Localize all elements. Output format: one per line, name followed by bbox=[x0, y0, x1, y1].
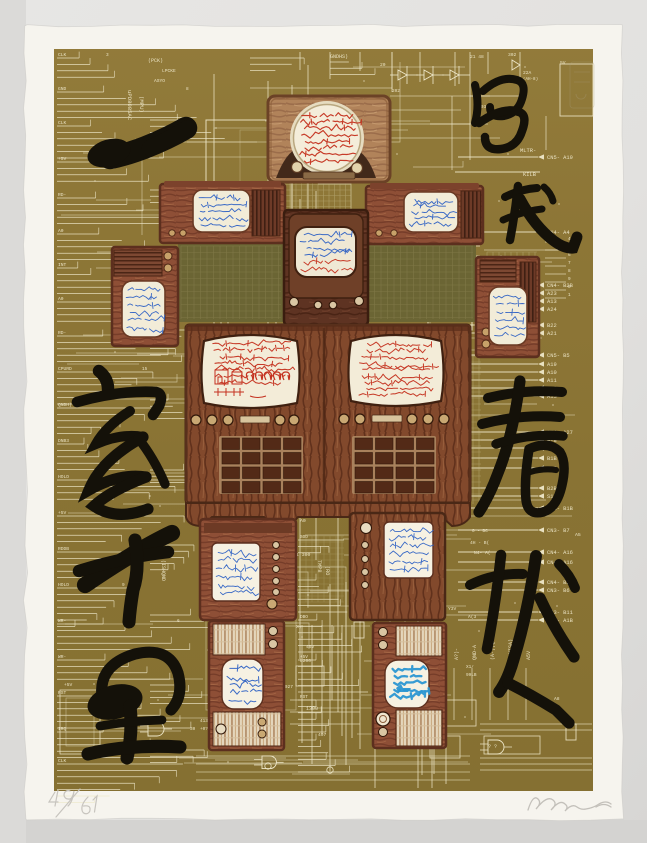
svg-text:A0: A0 bbox=[58, 296, 64, 302]
svg-text:A24: A24 bbox=[547, 307, 557, 313]
svg-text:+5V: +5V bbox=[58, 510, 67, 516]
svg-text:15: 15 bbox=[142, 367, 148, 372]
svg-text:DBO: DBO bbox=[300, 615, 308, 620]
svg-text:LPCKE: LPCKE bbox=[162, 68, 176, 74]
svg-text:A?)-: A?)- bbox=[454, 648, 460, 660]
svg-text:20: 20 bbox=[380, 62, 386, 68]
svg-text:CN5- A19: CN5- A19 bbox=[547, 155, 573, 161]
svg-text:+0?: +0? bbox=[200, 727, 208, 732]
svg-text:RDDB: RDDB bbox=[58, 546, 69, 552]
svg-text:8: 8 bbox=[186, 87, 189, 92]
svg-text:DNB3: DNB3 bbox=[58, 438, 69, 444]
svg-text:A0: A0 bbox=[300, 518, 306, 524]
svg-text:A5: A5 bbox=[575, 532, 581, 538]
svg-text:CN3- B6: CN3- B6 bbox=[547, 588, 570, 594]
svg-text:ASYO: ASYO bbox=[154, 78, 165, 84]
svg-text:0: 0 bbox=[568, 285, 571, 290]
svg-text:N4- A(: N4- A( bbox=[474, 550, 491, 556]
svg-text:QNDH): QNDH) bbox=[58, 402, 72, 408]
svg-text:KILB: KILB bbox=[523, 172, 537, 178]
svg-text:1 300: 1 300 bbox=[296, 552, 311, 558]
svg-text:A11: A11 bbox=[547, 378, 557, 384]
svg-text:INT: INT bbox=[58, 262, 67, 268]
svg-text:(RO: (RO bbox=[324, 566, 330, 575]
svg-text:CN4- A16: CN4- A16 bbox=[547, 550, 573, 556]
svg-text:? ?: ? ? bbox=[488, 744, 497, 750]
svg-text:RST: RST bbox=[300, 695, 308, 700]
svg-text:CLK: CLK bbox=[58, 120, 67, 126]
svg-text:9: 9 bbox=[122, 583, 125, 588]
svg-text:45V: 45V bbox=[306, 644, 315, 650]
svg-text:22A: 22A bbox=[523, 70, 532, 76]
svg-text:6: 6 bbox=[568, 253, 571, 258]
svg-text:MLTR-: MLTR- bbox=[520, 148, 536, 154]
svg-text:uPD8085AC: uPD8085AC bbox=[126, 90, 133, 121]
svg-text:302: 302 bbox=[508, 52, 517, 58]
svg-text:+5V: +5V bbox=[64, 682, 73, 688]
svg-text:X): X) bbox=[296, 624, 302, 630]
svg-text:WR-: WR- bbox=[58, 618, 66, 624]
svg-text:WR-: WR- bbox=[58, 654, 66, 660]
svg-text:RD-: RD- bbox=[58, 192, 66, 198]
svg-text:30: 30 bbox=[190, 727, 196, 732]
svg-text:A19: A19 bbox=[547, 362, 557, 368]
svg-text:(ISHQND: (ISHQND bbox=[160, 560, 166, 581]
svg-text:3: 3 bbox=[106, 53, 109, 58]
svg-text:A21: A21 bbox=[547, 331, 557, 337]
svg-text:Y3V: Y3V bbox=[448, 606, 457, 612]
svg-text:A10: A10 bbox=[547, 370, 557, 376]
svg-text:A5V: A5V bbox=[526, 651, 532, 660]
svg-text:CPURD: CPURD bbox=[58, 366, 72, 372]
svg-text:A23: A23 bbox=[547, 291, 557, 297]
svg-text:(PCK): (PCK) bbox=[148, 58, 163, 64]
svg-text:+5V: +5V bbox=[58, 156, 67, 162]
svg-text:A0: A0 bbox=[58, 228, 64, 234]
svg-text:A13: A13 bbox=[547, 299, 557, 305]
svg-text:CN5- B5: CN5- B5 bbox=[547, 353, 570, 359]
svg-text:B22: B22 bbox=[547, 323, 557, 329]
svg-text:9: 9 bbox=[568, 277, 571, 282]
svg-text:21 48: 21 48 bbox=[470, 54, 484, 60]
svg-text:5V: 5V bbox=[560, 60, 566, 66]
svg-text:RST: RST bbox=[58, 690, 67, 696]
svg-text:L200: L200 bbox=[300, 658, 311, 664]
svg-text:7: 7 bbox=[568, 261, 571, 266]
svg-text:IRQ: IRQ bbox=[58, 726, 67, 732]
svg-text:4H - B(: 4H - B( bbox=[470, 540, 489, 546]
svg-text:A(3: A(3 bbox=[468, 614, 477, 620]
svg-text:(MPU): (MPU) bbox=[138, 96, 145, 113]
svg-text:HOLD: HOLD bbox=[58, 582, 69, 588]
svg-text:413: 413 bbox=[200, 719, 208, 724]
svg-text:CN3- B7: CN3- B7 bbox=[547, 528, 570, 534]
svg-text:CLK: CLK bbox=[58, 758, 67, 764]
svg-text:A8: A8 bbox=[554, 696, 560, 702]
svg-text:99LB: 99LB bbox=[466, 673, 477, 678]
svg-text:0 - BC: 0 - BC bbox=[472, 529, 488, 534]
svg-text:RD-: RD- bbox=[58, 330, 66, 336]
svg-text:GND: GND bbox=[58, 86, 67, 92]
svg-text:GNDHS): GNDHS) bbox=[330, 54, 348, 60]
svg-text:202: 202 bbox=[392, 89, 400, 94]
svg-text:HOLD: HOLD bbox=[58, 474, 69, 480]
svg-text:8: 8 bbox=[568, 269, 571, 274]
svg-text:QND-A: QND-A bbox=[472, 645, 478, 660]
svg-text:CLK: CLK bbox=[58, 52, 67, 58]
svg-text:X1/: X1/ bbox=[466, 665, 474, 670]
svg-text:B1B: B1B bbox=[547, 456, 557, 462]
svg-text:1: 1 bbox=[568, 293, 571, 298]
